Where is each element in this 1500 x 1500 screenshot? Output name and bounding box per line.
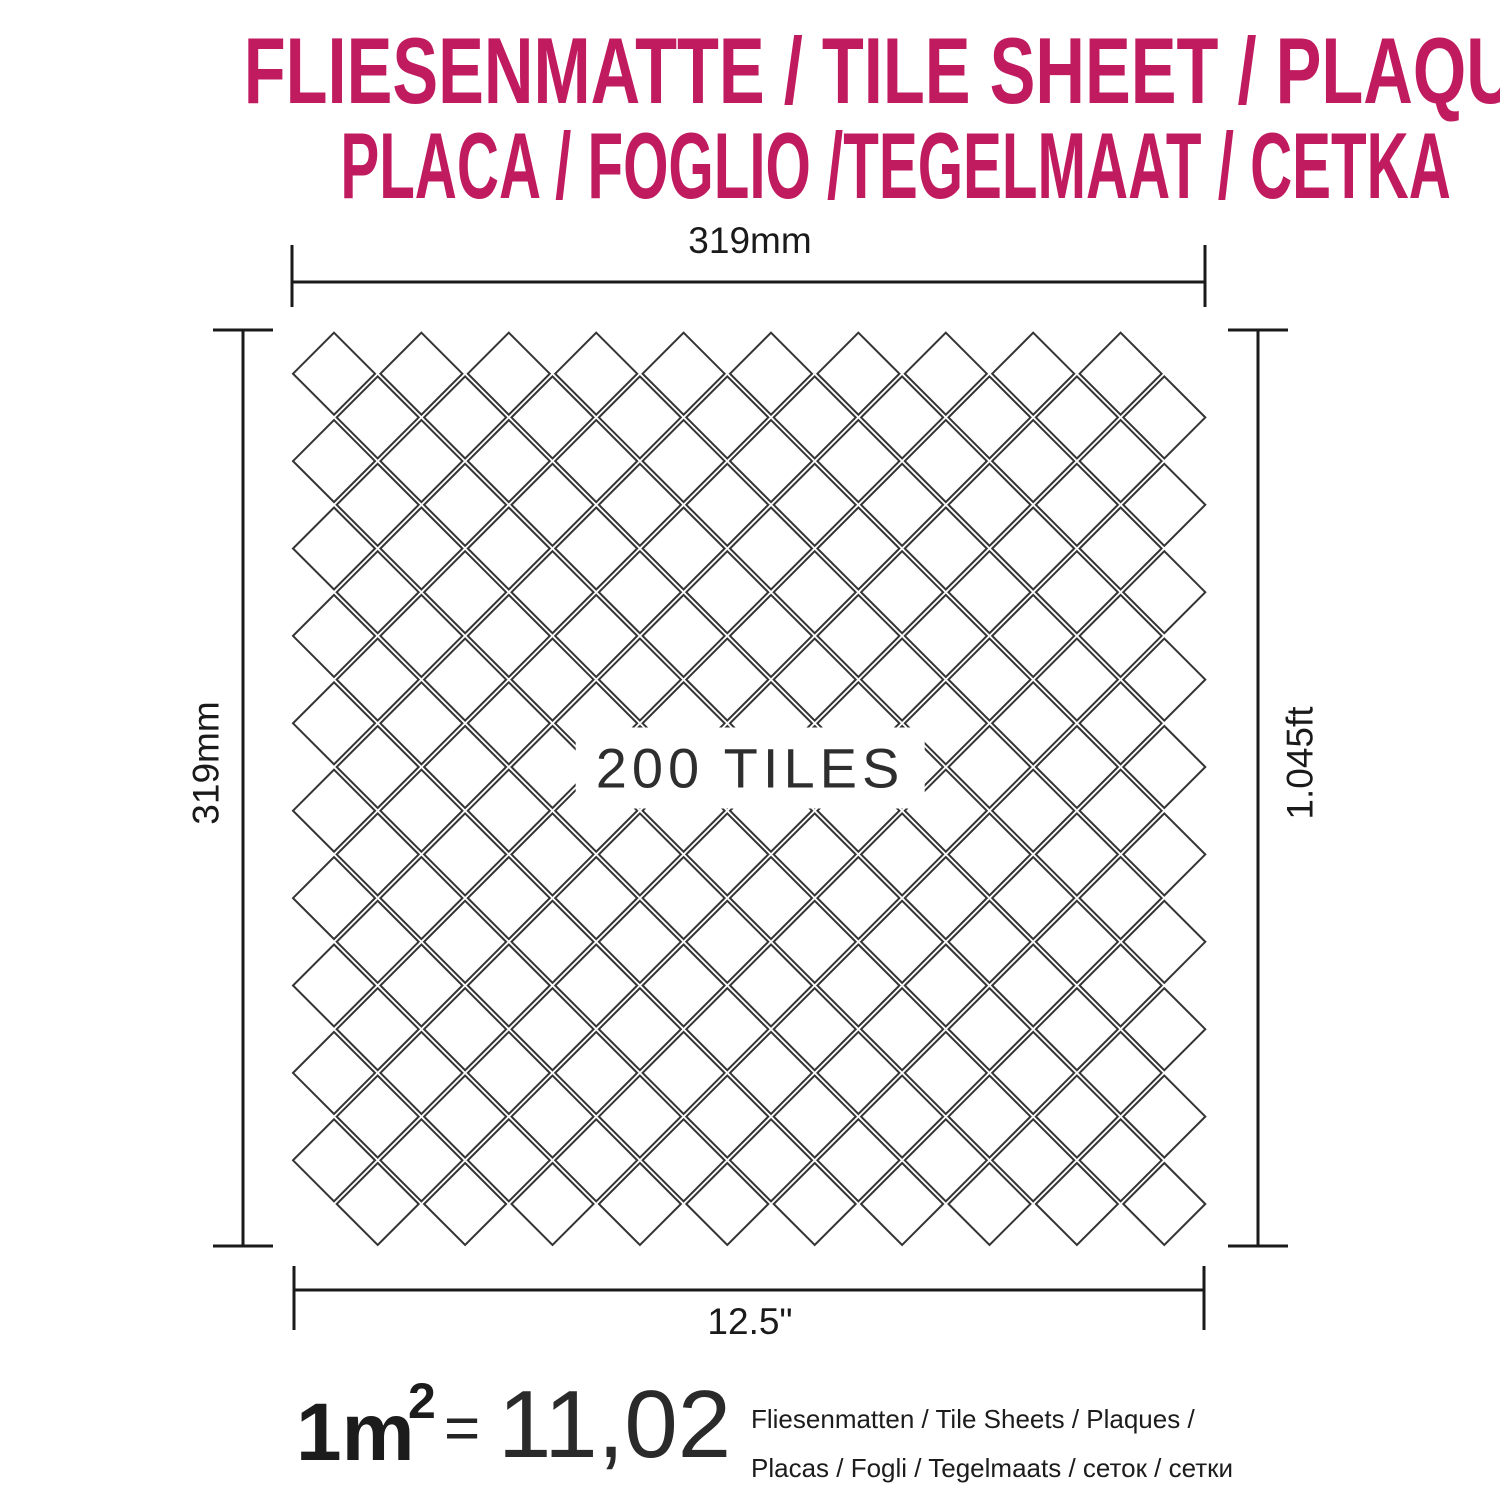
right-dimension-label: 1.045ft — [1282, 706, 1319, 819]
formula-value: 11,02 — [498, 1377, 731, 1473]
formula-units-line-1: Fliesenmatten / Tile Sheets / Plaques / — [751, 1395, 1233, 1444]
tile-sheet-spec-page: FLIESENMATTE / TILE SHEET / PLAQUE PLACA… — [0, 0, 1500, 1500]
bottom-dimension-label: 12.5" — [0, 1303, 1500, 1340]
formula-equals: = — [444, 1398, 480, 1460]
formula-lhs: 1m — [296, 1392, 415, 1474]
formula-units: Fliesenmatten / Tile Sheets / Plaques / … — [751, 1395, 1233, 1493]
top-dimension-label: 319mm — [0, 222, 1500, 259]
tile-count-label: 200 TILES — [576, 728, 925, 809]
formula-units-line-2: Placas / Fogli / Tegelmaats / сеток / се… — [751, 1444, 1233, 1493]
left-dimension-label: 319mm — [188, 701, 225, 824]
formula-exponent: 2 — [408, 1376, 436, 1426]
